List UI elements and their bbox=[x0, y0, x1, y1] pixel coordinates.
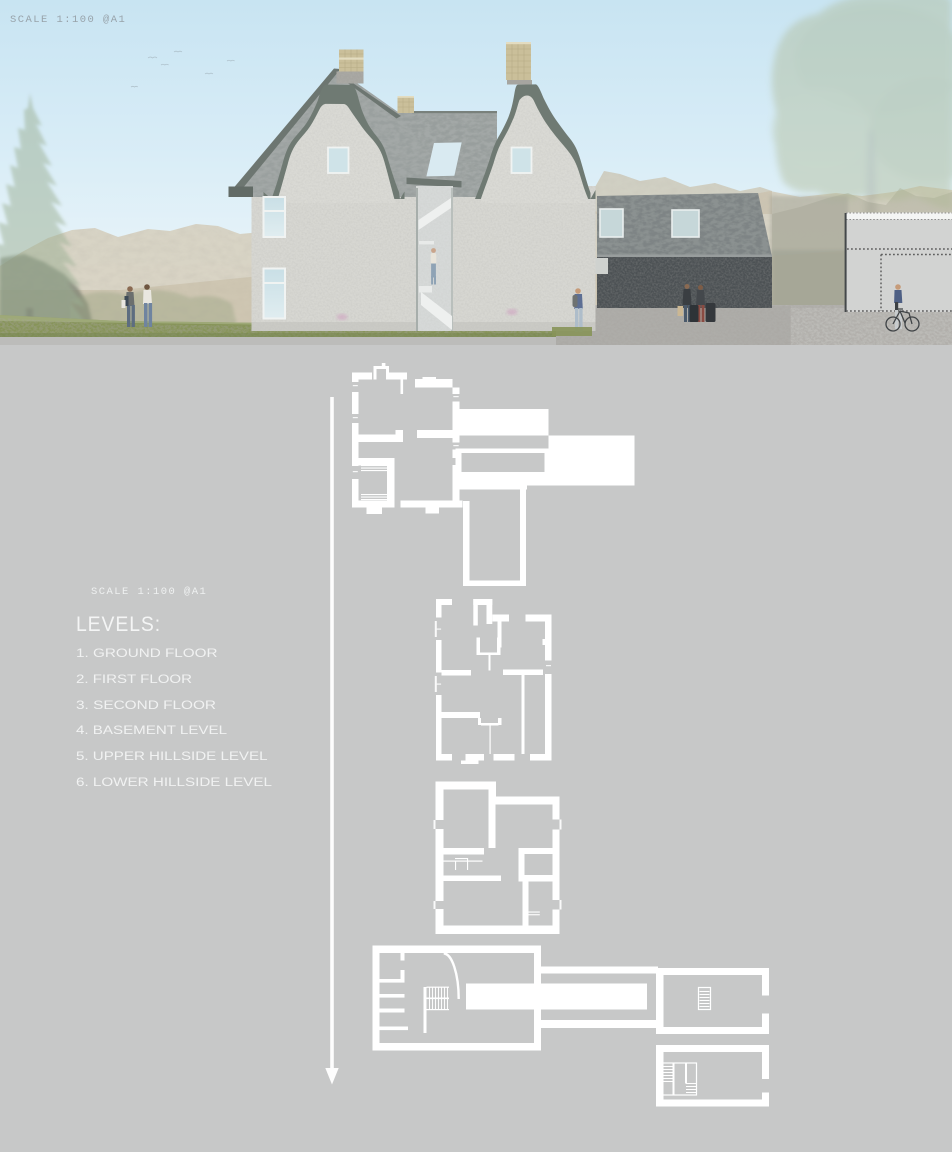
svg-text:2. FIRST FLOOR: 2. FIRST FLOOR bbox=[76, 672, 192, 686]
svg-text:LEVELS:: LEVELS: bbox=[76, 612, 161, 636]
svg-text:6. LOWER HILLSIDE LEVEL: 6. LOWER HILLSIDE LEVEL bbox=[76, 775, 272, 789]
svg-text:4. BASEMENT LEVEL: 4. BASEMENT LEVEL bbox=[76, 723, 227, 737]
svg-text:5. UPPER HILLSIDE LEVEL: 5. UPPER HILLSIDE LEVEL bbox=[76, 749, 268, 763]
svg-text:1. GROUND FLOOR: 1. GROUND FLOOR bbox=[76, 646, 218, 660]
svg-text:SCALE 1:100 @A1: SCALE 1:100 @A1 bbox=[91, 586, 207, 598]
svg-text:3. SECOND FLOOR: 3. SECOND FLOOR bbox=[76, 698, 216, 712]
svg-text:SCALE 1:100 @A1: SCALE 1:100 @A1 bbox=[10, 14, 126, 26]
